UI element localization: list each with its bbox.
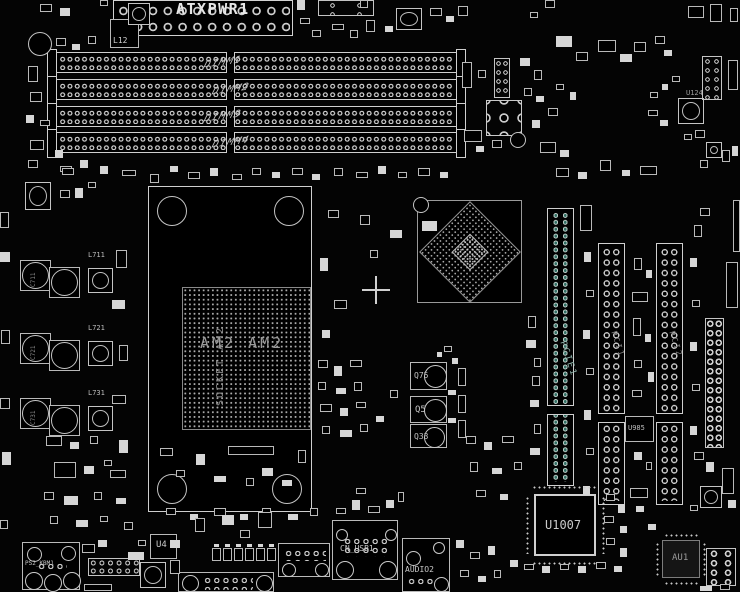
component-pad [618, 504, 625, 513]
bottom-edge-connector [178, 572, 274, 592]
component [586, 290, 594, 297]
component-pad [560, 150, 569, 157]
mounting-hole [413, 197, 429, 213]
component [630, 488, 648, 498]
dimm-latch [47, 49, 57, 78]
component-pad [614, 566, 622, 572]
component-pad [476, 146, 484, 152]
dimm-latch [47, 103, 57, 132]
component-pad [662, 84, 668, 90]
component [728, 60, 738, 90]
component-pad [340, 430, 352, 437]
component [336, 508, 346, 514]
component [688, 6, 704, 18]
component-pad [536, 96, 544, 102]
component [228, 446, 274, 455]
component-pad [75, 188, 83, 198]
component [548, 108, 558, 116]
component-pad [478, 576, 486, 582]
l721-label: L721 [88, 325, 105, 332]
component [422, 221, 437, 231]
component-pad [26, 115, 34, 123]
header-connector [494, 58, 510, 98]
audio-label: AUDIO2 [405, 566, 434, 574]
pci-key-notch [656, 413, 683, 423]
connector-pins [203, 576, 253, 590]
component [350, 360, 362, 367]
chip-component [396, 8, 422, 30]
component [50, 516, 58, 524]
component [692, 300, 700, 307]
connector-hole [315, 563, 329, 577]
component-pad [510, 560, 518, 567]
cross-line [375, 276, 377, 304]
component-pad [530, 400, 539, 407]
component [672, 76, 680, 82]
component [470, 552, 480, 559]
component [633, 318, 641, 336]
component [366, 20, 375, 32]
connector-hole [256, 575, 273, 592]
component [586, 368, 594, 375]
component-pad [488, 546, 495, 555]
component-pad [322, 330, 330, 338]
component [733, 200, 740, 252]
component [684, 134, 692, 140]
component [726, 262, 738, 308]
pci-pin-holes [660, 247, 679, 501]
component [44, 492, 54, 500]
component [360, 0, 368, 8]
socket-horizontal-label: AM2 AM2 [200, 336, 284, 351]
component-pad [660, 120, 668, 126]
pci-pin-holes [602, 247, 621, 501]
component-pad [452, 358, 458, 364]
dimm-slot-2 [55, 79, 458, 100]
component [360, 424, 368, 432]
component [62, 168, 74, 175]
component [398, 492, 404, 502]
component [56, 38, 66, 46]
usb-label: CN_USB1 [340, 545, 374, 553]
component-pad [72, 44, 80, 50]
pin-column [600, 496, 607, 554]
component-pad [570, 92, 576, 100]
q5-label: Q5 [415, 406, 426, 415]
component-pad [76, 520, 88, 527]
component [534, 358, 541, 367]
dimm-slot-1 [55, 52, 458, 73]
component [646, 462, 652, 470]
component [60, 190, 70, 198]
northbridge-outline [417, 200, 522, 303]
component-pad [620, 54, 632, 62]
pin-row [532, 484, 596, 491]
component-pad [385, 26, 393, 32]
component [502, 436, 514, 443]
component [150, 174, 159, 183]
component-pad [312, 174, 320, 180]
pin-column [654, 542, 660, 576]
chip-component [128, 3, 150, 25]
chip-component [140, 562, 166, 588]
vrm-phase-3: C731 [20, 396, 116, 442]
socket-corner-hole [272, 474, 302, 504]
header-connector [88, 558, 140, 576]
dimm-pin-holes [59, 109, 454, 124]
component [188, 172, 200, 179]
component-pad [210, 168, 218, 176]
component [514, 462, 522, 470]
component [700, 208, 710, 216]
component-pad [584, 410, 591, 420]
u4-label: U4 [156, 541, 167, 550]
component-pad [272, 172, 280, 178]
component [356, 402, 366, 408]
component [322, 426, 330, 434]
component [458, 395, 466, 413]
inductor [88, 406, 113, 431]
u124-label: U124 [686, 90, 703, 97]
component-pad [128, 552, 144, 560]
component [632, 292, 648, 302]
component-pad [484, 442, 492, 450]
transistor-body [424, 399, 447, 422]
component [370, 250, 378, 258]
connector-hole [182, 575, 199, 592]
component [640, 166, 657, 175]
component [534, 70, 542, 80]
component [692, 384, 700, 391]
pin-row [664, 580, 698, 586]
component [720, 584, 730, 590]
component [292, 168, 303, 175]
component-pad [112, 300, 125, 309]
component-pad [214, 476, 226, 482]
component [356, 172, 368, 178]
component [160, 448, 173, 456]
component [560, 564, 569, 570]
component-pad [620, 526, 627, 533]
component [350, 30, 358, 38]
component [82, 544, 95, 553]
vrm-phase-2: C721 [20, 331, 116, 377]
component [492, 140, 502, 148]
component-pad [297, 0, 305, 10]
component-pad [437, 352, 442, 357]
component [470, 462, 478, 472]
pin-row [664, 532, 698, 538]
component-pad [622, 170, 630, 176]
component-pad [340, 408, 348, 416]
component [694, 452, 704, 460]
component [476, 490, 486, 497]
component [40, 120, 50, 126]
connector-hole [434, 577, 449, 592]
component-pad [386, 500, 394, 508]
dimm-latch [47, 76, 57, 105]
dimm-pin-holes [59, 82, 454, 97]
component-pad [700, 586, 712, 591]
component [604, 516, 614, 523]
component-pad [390, 230, 402, 238]
component-pad [530, 448, 540, 455]
component-pad [352, 500, 360, 510]
component-pad [583, 330, 590, 339]
chip-component [25, 182, 51, 210]
component [598, 40, 616, 52]
component-pad [620, 548, 627, 557]
component [166, 508, 176, 515]
component [258, 512, 272, 528]
component [320, 404, 332, 412]
component [122, 170, 136, 176]
component-pad [119, 440, 128, 453]
component [84, 584, 112, 591]
dimm-slot-4 [55, 132, 458, 153]
component [195, 518, 205, 532]
au1-label: AU1 [672, 554, 688, 563]
component [368, 506, 380, 513]
component [100, 516, 108, 522]
component [88, 182, 96, 188]
component [464, 130, 482, 142]
component-pad [664, 50, 672, 56]
component-pad [55, 150, 63, 158]
component-pad [378, 166, 386, 174]
component [46, 436, 62, 446]
component-pad [0, 252, 10, 262]
connector-hole [61, 546, 76, 561]
component-pad [690, 342, 697, 351]
connector-hole [336, 561, 354, 579]
pci-slot-2 [656, 243, 683, 505]
component-pad [196, 454, 205, 465]
component-pad [2, 452, 11, 465]
component [256, 548, 265, 561]
component-pad [70, 442, 79, 449]
component [632, 390, 642, 397]
component-pad [728, 500, 736, 508]
component [690, 505, 698, 511]
component [418, 168, 430, 176]
component-pad [84, 466, 94, 474]
component [466, 436, 476, 444]
component [596, 562, 606, 569]
ps2-label: PS2_KBM1 [25, 561, 54, 567]
component [528, 316, 536, 328]
component-pad [500, 494, 508, 500]
component-pad [492, 468, 502, 474]
component [40, 4, 52, 12]
component-pad [240, 514, 248, 520]
component [310, 508, 318, 516]
q33-label: Q33 [414, 433, 428, 441]
dimm-latch [456, 103, 466, 132]
component [730, 8, 738, 22]
component [390, 390, 398, 398]
socket-pin-grid [182, 287, 311, 430]
component [524, 88, 532, 96]
component [444, 346, 452, 352]
component [556, 84, 564, 90]
mounting-hole [28, 32, 52, 56]
connector-pins [284, 549, 326, 561]
component [556, 168, 569, 177]
component [695, 130, 705, 138]
component [252, 168, 261, 175]
component-pad [646, 270, 652, 278]
component [30, 140, 44, 150]
connector-hole [379, 561, 397, 579]
connector-hole [433, 542, 445, 554]
component [722, 468, 734, 494]
u1007-label: U1007 [545, 519, 581, 531]
component-pad [247, 544, 252, 547]
component [318, 382, 326, 390]
component [245, 548, 254, 561]
component [494, 570, 501, 578]
pcb-boardview: ATXPWR1 L12 DIMM1 DIMM2 DIMM3 DIMM4 SOCK… [0, 0, 740, 592]
component [634, 258, 642, 270]
component-pad [584, 252, 591, 262]
component-pad [690, 426, 697, 435]
header-connector [705, 318, 724, 448]
pin-column [524, 496, 531, 554]
component [458, 368, 466, 386]
component [398, 172, 407, 178]
pci-slot-1 [598, 243, 625, 505]
component-pad [706, 462, 714, 472]
component [586, 448, 594, 455]
component [0, 520, 8, 529]
component [28, 66, 38, 82]
component-pad [214, 544, 219, 547]
component [298, 450, 306, 463]
component [354, 382, 362, 391]
l731-label: L731 [88, 390, 105, 397]
component-pad [636, 506, 644, 512]
component [88, 36, 96, 44]
component-pad [269, 544, 274, 547]
component-pad [64, 496, 78, 505]
component [28, 160, 38, 168]
header-connector [702, 56, 722, 100]
component [694, 225, 702, 237]
socket-corner-hole [274, 196, 304, 226]
component [124, 522, 133, 530]
l12-label: L12 [113, 37, 127, 45]
component [430, 8, 442, 16]
component [110, 470, 126, 478]
component [0, 398, 10, 409]
connector-hole [282, 563, 296, 577]
component [104, 460, 112, 466]
component-pad [542, 566, 550, 573]
component-pad [448, 418, 456, 423]
component [334, 300, 347, 309]
component-pad [556, 36, 572, 47]
connector-hole [63, 572, 81, 590]
component [30, 92, 42, 102]
q33-transistor: Q33 [410, 424, 447, 448]
inductor [88, 268, 113, 293]
socket-corner-hole [157, 474, 187, 504]
component-pad [648, 372, 654, 382]
l711-label: L711 [88, 252, 105, 259]
mounting-hole [510, 132, 526, 148]
component [90, 436, 98, 444]
component [234, 548, 243, 561]
component-pad [690, 258, 697, 267]
component [460, 570, 469, 577]
component [650, 92, 658, 98]
component [524, 564, 534, 570]
component [223, 548, 232, 561]
component [634, 360, 642, 368]
component [138, 540, 146, 546]
component [312, 30, 321, 37]
component-pad [236, 544, 241, 547]
component-pad [98, 540, 107, 547]
io-connector [278, 543, 330, 577]
component [332, 24, 344, 30]
component [462, 62, 472, 88]
connector-hole [406, 551, 421, 566]
u985-label: U985 [628, 425, 645, 432]
component-pad [282, 480, 292, 486]
header-connector [706, 548, 736, 586]
component [530, 12, 538, 18]
capacitor [51, 269, 78, 296]
component [246, 478, 254, 486]
component [545, 0, 555, 8]
component-pad [60, 8, 70, 16]
component [606, 538, 615, 545]
component [0, 212, 9, 228]
component [300, 18, 310, 24]
component [232, 174, 242, 180]
component [212, 548, 221, 561]
component-pad [336, 388, 346, 394]
component [100, 0, 108, 6]
component [600, 160, 611, 171]
component [170, 560, 180, 574]
connector-hole [44, 574, 62, 592]
component-pad [100, 166, 108, 174]
component-pad [578, 172, 587, 179]
component [648, 110, 658, 116]
component [634, 42, 646, 52]
component [119, 345, 128, 361]
component-pad [258, 544, 263, 547]
component [112, 395, 126, 404]
component-pad [645, 334, 651, 342]
pcie-key-notch [547, 405, 574, 415]
atx-power-label: ATXPWR1 [176, 2, 250, 17]
component [328, 210, 339, 218]
component [1, 330, 10, 344]
dimm-pin-holes [59, 135, 454, 150]
component [318, 360, 328, 368]
component-pad [225, 544, 230, 547]
u124-chip [678, 98, 704, 124]
chip-component [700, 486, 722, 508]
component [700, 160, 708, 168]
component [606, 494, 615, 501]
component-pad [334, 366, 342, 376]
component [576, 52, 588, 61]
